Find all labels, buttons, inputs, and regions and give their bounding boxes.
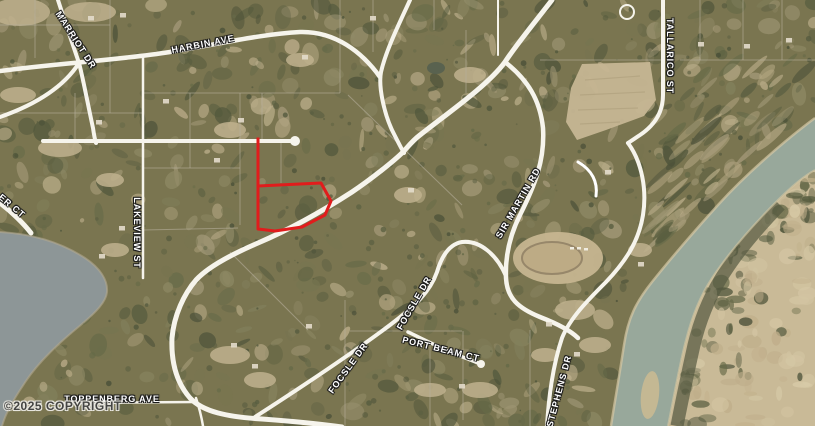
building	[163, 99, 169, 104]
aerial-imagery	[0, 0, 815, 426]
building	[459, 384, 465, 389]
satellite-map-view[interactable]: ©2025 COPYRIGHT MARRIOT DRHARBIN AVETALL…	[0, 0, 815, 426]
building	[252, 364, 258, 369]
building	[119, 226, 125, 231]
building	[698, 42, 704, 47]
building	[605, 170, 611, 175]
building	[546, 322, 552, 327]
building	[99, 254, 105, 259]
building	[574, 352, 580, 357]
copyright-watermark: ©2025 COPYRIGHT	[4, 399, 122, 413]
building	[408, 188, 414, 193]
building	[638, 262, 644, 267]
building	[238, 118, 244, 123]
road-port-beam-ct	[408, 332, 478, 363]
road-south-spur	[196, 398, 203, 426]
building	[96, 120, 102, 125]
building	[302, 55, 308, 60]
building	[306, 324, 312, 329]
building	[214, 158, 220, 163]
building	[786, 38, 792, 43]
building	[88, 16, 94, 21]
building	[370, 16, 376, 21]
building	[744, 44, 750, 49]
building	[231, 343, 237, 348]
building	[120, 13, 126, 18]
